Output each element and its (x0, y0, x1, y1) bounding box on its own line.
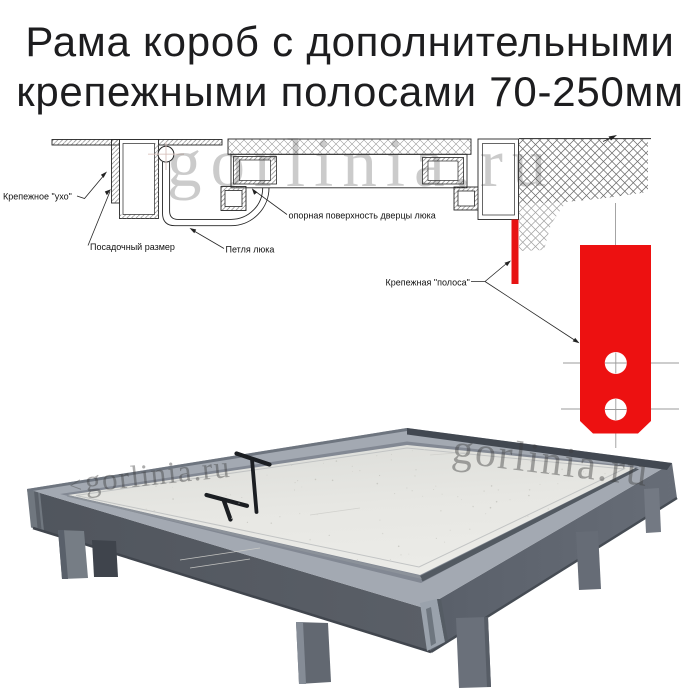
svg-text:Посадочный размер: Посадочный размер (90, 242, 175, 252)
svg-text:gorlinia.ru: gorlinia.ru (167, 125, 555, 201)
svg-text:Крепежная "полоса": Крепежная "полоса" (386, 278, 470, 288)
svg-text:Крепежное "ухо": Крепежное "ухо" (3, 192, 72, 202)
svg-text:<: < (68, 472, 83, 498)
svg-text:опорная поверхность дверцы люк: опорная поверхность дверцы люка (289, 211, 436, 221)
svg-text:Петля люка: Петля люка (226, 245, 275, 255)
